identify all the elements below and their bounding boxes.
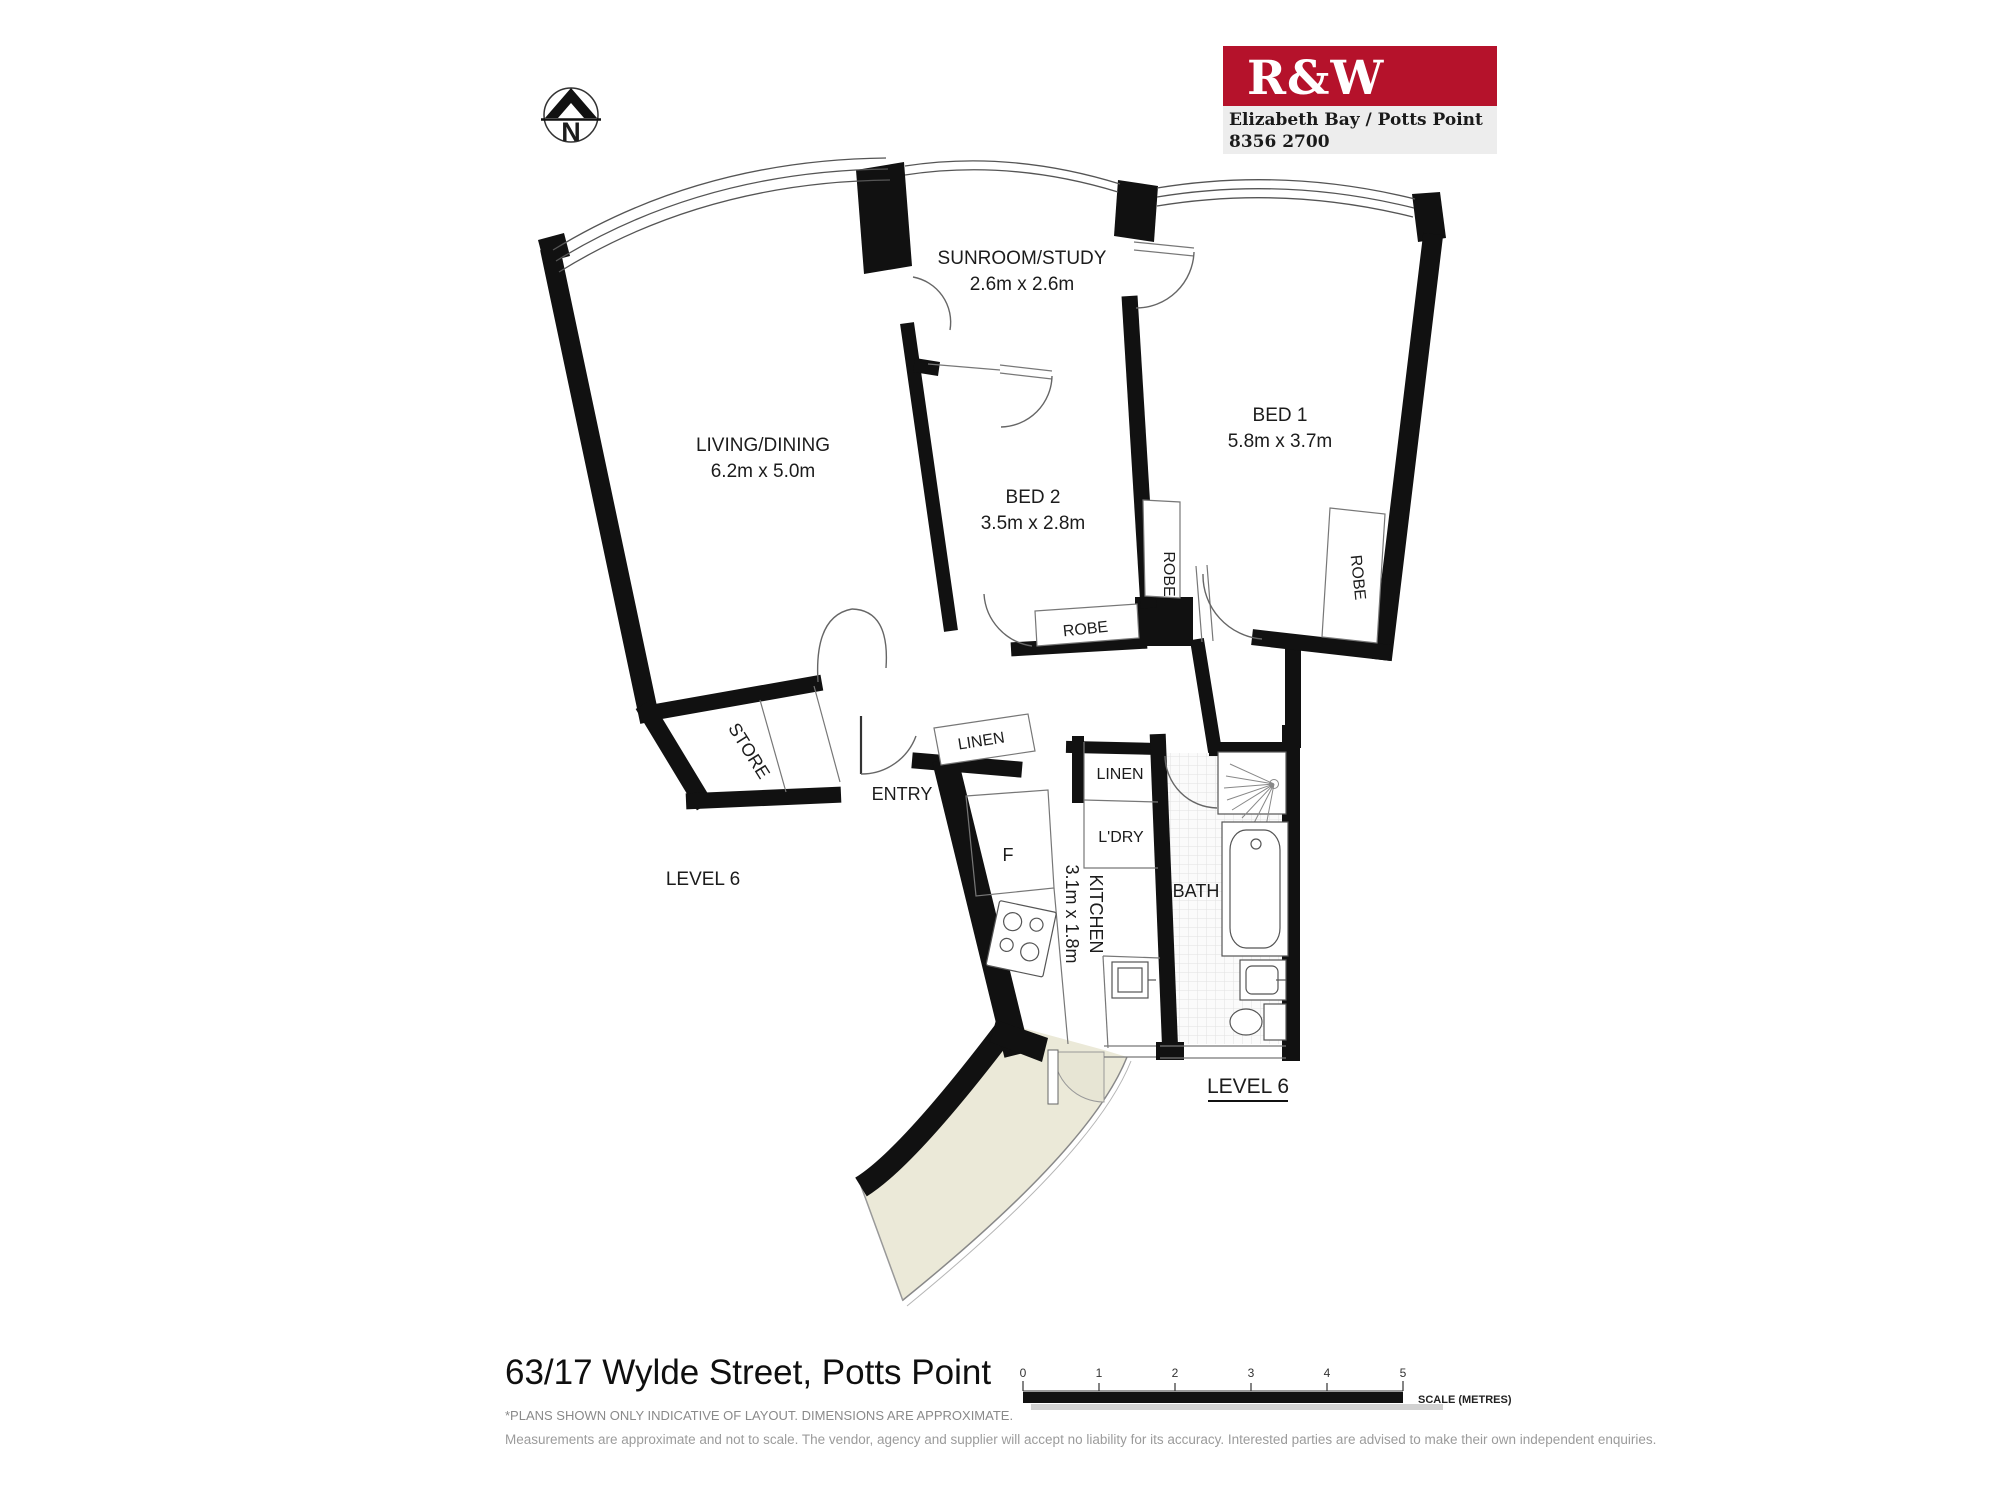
scale-bar-black	[1023, 1392, 1403, 1403]
disclaimer-line1: *PLANS SHOWN ONLY INDICATIVE OF LAYOUT. …	[505, 1408, 1013, 1423]
balcony	[861, 1024, 1160, 1306]
entry-label: ENTRY	[872, 784, 933, 804]
scale-bar-shadow	[1031, 1404, 1443, 1410]
kitchen-bench-top-edge	[1103, 956, 1160, 958]
store-label: STORE	[724, 719, 774, 782]
bed2-dims: 3.5m x 2.8m	[981, 513, 1086, 534]
floorplan-image: SUNROOM/STUDY 2.6m x 2.6m LIVING/DINING …	[0, 0, 2000, 1500]
address: 63/17 Wylde Street, Potts Point	[505, 1353, 991, 1392]
kitchen-sink-bowl	[1118, 968, 1142, 992]
hall-bath-wall	[1198, 646, 1214, 745]
logo-wordmark: R&W	[1247, 51, 1384, 106]
level-right-label: LEVEL 6	[1207, 1075, 1289, 1098]
north-letter: N	[561, 117, 581, 147]
scale-ticks	[1023, 1381, 1403, 1391]
bed1-top-door-threshold	[1134, 242, 1194, 256]
scale-tick-0: 0	[1020, 1366, 1027, 1380]
scale-tick-3: 3	[1248, 1366, 1255, 1380]
north-arrow: N	[541, 88, 601, 147]
bed1-dims: 5.8m x 3.7m	[1228, 431, 1333, 452]
balcony-door-leaf	[1048, 1050, 1058, 1104]
bed2-door-threshold	[1000, 365, 1052, 379]
logo-phone: 8356 2700	[1229, 132, 1330, 152]
living-double-door-left	[818, 609, 852, 682]
agency-logo: R&W Elizabeth Bay / Potts Point 8356 270…	[1223, 46, 1497, 154]
linen-kitchen-label: LINEN	[1096, 766, 1143, 783]
stove	[986, 901, 1056, 978]
sunroom-right-pillar	[1114, 180, 1158, 242]
living-left-wall	[552, 258, 648, 712]
bed2-hall-door	[984, 594, 1032, 646]
store-left-wall	[648, 712, 700, 798]
basin-bowl	[1246, 966, 1278, 994]
bed2-door	[1001, 376, 1052, 427]
laundry-label: L'DRY	[1098, 829, 1144, 846]
store-divider	[760, 700, 786, 792]
scale-tick-5: 5	[1400, 1366, 1407, 1380]
walls	[538, 162, 1446, 1062]
sunroom-dims: 2.6m x 2.6m	[970, 274, 1075, 295]
robe-bed2-label: ROBE	[1160, 551, 1177, 596]
linen2-top-wall	[1072, 747, 1158, 749]
kitchen-bench-right-edge	[1103, 956, 1108, 1048]
scale-tick-2: 2	[1172, 1366, 1179, 1380]
living-dims: 6.2m x 5.0m	[711, 461, 816, 482]
linen-ldry-divider	[1084, 800, 1158, 802]
bed1-label: BED 1	[1253, 405, 1308, 426]
toilet-bowl	[1230, 1009, 1262, 1035]
level-left-label: LEVEL 6	[666, 869, 740, 890]
bath-label: BATH	[1173, 881, 1220, 901]
floorplan-page: SUNROOM/STUDY 2.6m x 2.6m LIVING/DINING …	[0, 0, 2000, 1500]
living-double-door-right	[852, 609, 886, 668]
footer: 63/17 Wylde Street, Potts Point *PLANS S…	[505, 1353, 1656, 1447]
disclaimer-line2: Measurements are approximate and not to …	[505, 1432, 1656, 1447]
store-bottom-wall	[694, 795, 833, 801]
sunroom-window	[905, 161, 1120, 184]
kitchen-dims: 3.1m x 1.8m	[1062, 864, 1082, 963]
linen-ldry-outline	[1084, 742, 1158, 868]
living-lobby-door	[913, 277, 951, 330]
bed1-hall-door-jambs	[1196, 565, 1213, 642]
sunroom-left-pillar	[856, 162, 912, 274]
bed1-right-wall	[1383, 244, 1432, 650]
scale-tick-1: 1	[1096, 1366, 1103, 1380]
entry-door-swing	[861, 736, 916, 774]
scale-caption: SCALE (METRES)	[1418, 1394, 1512, 1406]
bed1-top-door	[1136, 252, 1194, 308]
kitchen-label: KITCHEN	[1086, 874, 1106, 953]
bed2-label: BED 2	[1006, 487, 1061, 508]
store-right-edge	[814, 686, 840, 782]
bathtub-drain	[1251, 839, 1261, 849]
scale-bar: 0 1 2 3 4 5 SCALE (METRES)	[1020, 1366, 1512, 1410]
fixtures	[986, 752, 1288, 1040]
living-bottom-wall	[650, 684, 814, 713]
fridge-label: F	[1003, 845, 1014, 865]
scale-tick-4: 4	[1324, 1366, 1331, 1380]
bath-bottom-stub	[1156, 1042, 1184, 1060]
logo-office: Elizabeth Bay / Potts Point	[1229, 110, 1483, 130]
toilet-cistern	[1264, 1004, 1286, 1040]
sunroom-label: SUNROOM/STUDY	[938, 248, 1107, 269]
living-label: LIVING/DINING	[696, 435, 830, 456]
